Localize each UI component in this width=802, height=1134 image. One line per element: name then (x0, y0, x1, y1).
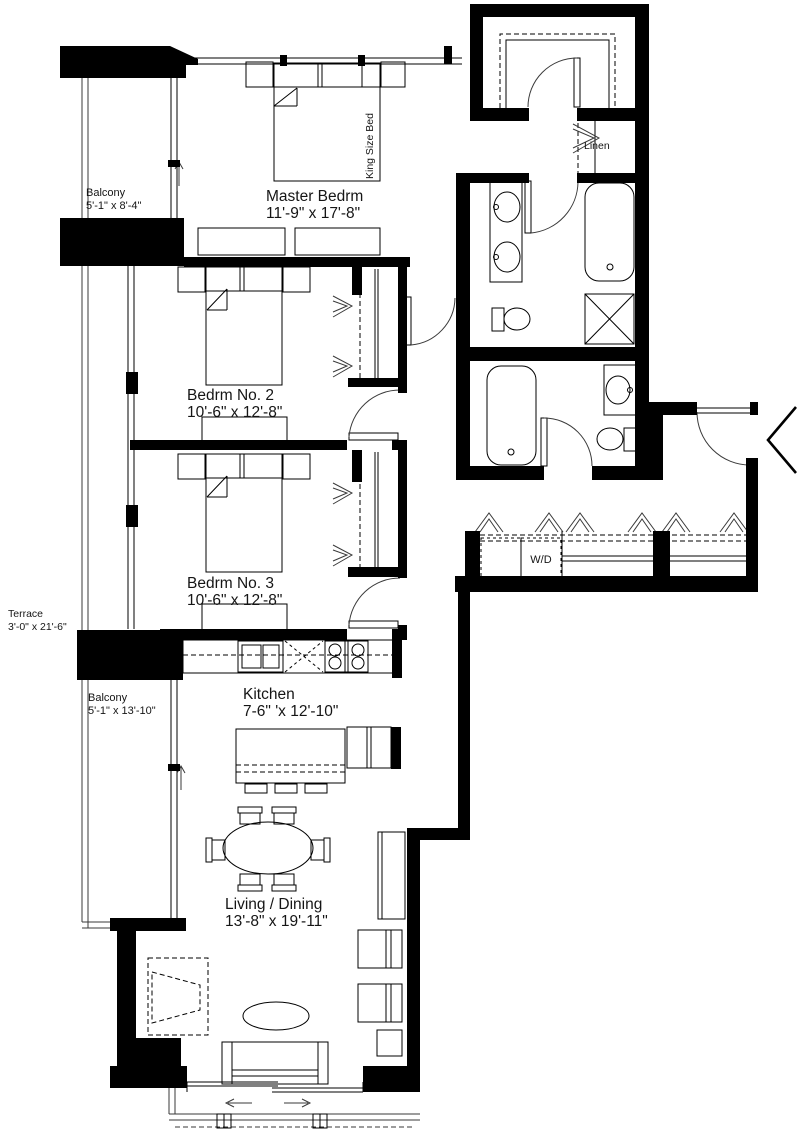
bed-fold (207, 289, 227, 310)
bedroom-2-dims: 10'-6" x 12'-8" (187, 404, 282, 421)
door-swing (349, 390, 400, 437)
kitchen-sink (238, 641, 283, 672)
window-walls (128, 58, 462, 918)
tall-cabinet (378, 832, 405, 919)
dresser (198, 228, 380, 255)
interior-walls (130, 108, 758, 769)
balcony-post (217, 1114, 327, 1128)
door-swing (349, 578, 400, 625)
bed-fold (207, 476, 227, 497)
kitchen-label: Kitchen (243, 686, 295, 703)
bathtub (585, 183, 634, 281)
living-dining-label: Living / Dining (225, 896, 322, 913)
bathtub (487, 366, 536, 465)
bifold-door-icon (475, 513, 748, 532)
bedroom-3-label: Bedrm No. 3 (187, 575, 274, 592)
floor-plan: Balcony 5'-1" x 8'-4" Master Bedrm 11'-9… (0, 0, 802, 1134)
island (236, 729, 345, 783)
balcony-top-dims: 5'-1" x 8'-4" (86, 200, 142, 212)
master-bathroom (490, 181, 634, 344)
hall-closets (475, 513, 748, 580)
bifold-door-icon (333, 296, 352, 377)
bed (206, 291, 282, 385)
stool (245, 784, 327, 793)
living-dining-furniture (148, 807, 405, 1107)
headboard (206, 267, 282, 291)
washer-dryer-label: W/D (530, 554, 551, 566)
sink (494, 192, 520, 222)
living-dining-dims: 13'-8" x 19'-11" (225, 913, 328, 930)
dishwasher (285, 641, 323, 672)
bifold-door-icon (333, 483, 352, 566)
headboard (206, 454, 282, 478)
balcony-lower-label: Balcony (88, 692, 128, 704)
toilet (624, 428, 636, 451)
sink (606, 376, 630, 404)
master-left-window (171, 64, 177, 218)
closet-door (574, 58, 580, 107)
door (525, 181, 531, 233)
sofa (222, 1042, 328, 1084)
dining-table (223, 822, 313, 874)
bed (206, 478, 282, 572)
walls (60, 4, 758, 1092)
entry-door (697, 408, 750, 413)
toilet-bowl (597, 428, 623, 450)
closet-door-swing (528, 58, 577, 107)
side-table (377, 1030, 402, 1056)
shower (585, 294, 634, 344)
kitchen-dims: 7-6" 'x 12'-10" (243, 703, 338, 720)
door (349, 621, 398, 628)
bathroom-2 (487, 365, 637, 466)
slide-arrow-icon (226, 1099, 310, 1107)
terrace-label: Terrace (8, 608, 43, 620)
bedroom-2-label: Bedrm No. 2 (187, 387, 274, 404)
entry-arrow-icon (768, 407, 796, 473)
floor-plan-page: Balcony 5'-1" x 8'-4" Master Bedrm 11'-9… (0, 0, 802, 1134)
terrace-dims: 3'-0" x 21'-6" (8, 621, 67, 633)
armchair (358, 930, 402, 968)
living-window (171, 680, 177, 918)
tv-niche (148, 958, 208, 1035)
dining-chair (206, 807, 330, 891)
bedroom-3-dims: 10'-6" x 12'-8" (187, 592, 282, 609)
door (541, 418, 547, 466)
door (349, 433, 398, 440)
master-bedroom-dims: 11'-9" x 17'-8" (266, 205, 360, 222)
headboard (274, 63, 380, 87)
door-swing (531, 182, 578, 233)
toilet-bowl (504, 308, 530, 330)
corridor-door (405, 297, 455, 345)
linen-label: Linen (584, 140, 610, 152)
balcony-lower-dims: 5'-1" x 13'-10" (88, 705, 156, 717)
entry-door-swing (697, 412, 750, 465)
sink (494, 242, 520, 272)
fridge (347, 727, 391, 768)
nightstand (246, 62, 405, 87)
armchair (358, 984, 402, 1022)
door-swing (544, 418, 592, 466)
king-bed-label: King Size Bed (364, 113, 376, 179)
bed-fold (274, 88, 297, 106)
walk-in-closet (500, 34, 615, 120)
toilet (492, 308, 504, 331)
master-bedroom-label: Master Bedrm (266, 188, 363, 205)
balcony-top-label: Balcony (86, 187, 126, 199)
door-swing (411, 298, 455, 345)
coffee-table (243, 1002, 309, 1030)
